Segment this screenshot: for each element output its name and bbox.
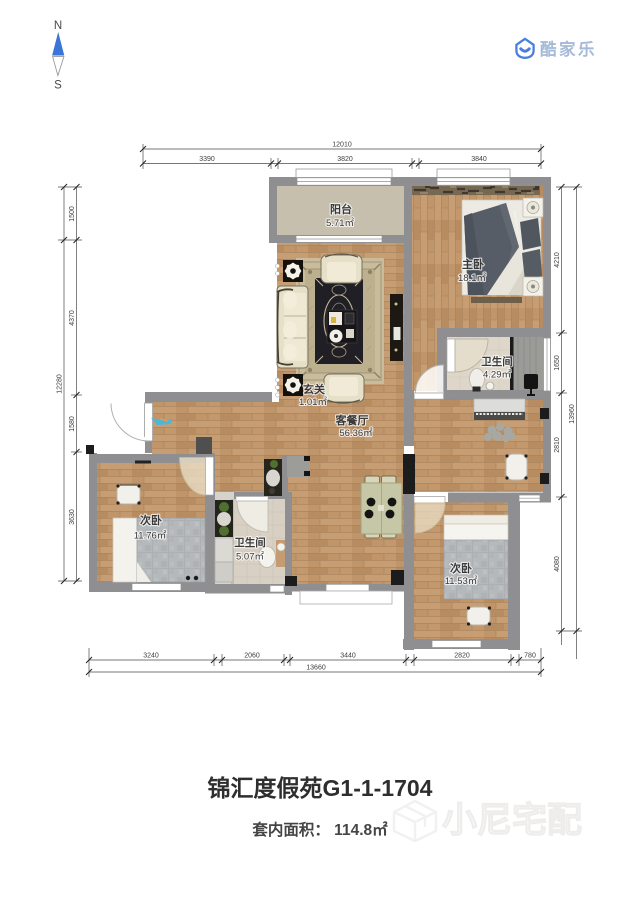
svg-text:小尼宅配: 小尼宅配 xyxy=(442,800,582,840)
svg-text:4080: 4080 xyxy=(554,556,561,572)
svg-text:阳台: 阳台 xyxy=(330,202,352,216)
svg-text:客餐厅: 客餐厅 xyxy=(335,413,369,427)
svg-text:2820: 2820 xyxy=(454,653,470,660)
svg-text:2810: 2810 xyxy=(554,437,561,453)
svg-text:酷家乐: 酷家乐 xyxy=(540,39,597,59)
svg-text:N: N xyxy=(54,20,62,32)
svg-text:11.53㎡: 11.53㎡ xyxy=(445,576,478,587)
svg-text:次卧: 次卧 xyxy=(140,513,162,527)
svg-text:780: 780 xyxy=(524,653,536,660)
svg-text:锦汇度假苑G1-1-1704: 锦汇度假苑G1-1-1704 xyxy=(208,775,433,801)
svg-text:56.36㎡: 56.36㎡ xyxy=(339,428,373,439)
svg-text:5.71㎡: 5.71㎡ xyxy=(326,218,354,229)
svg-text:卫生间: 卫生间 xyxy=(234,536,266,549)
svg-text:3820: 3820 xyxy=(337,156,353,163)
svg-text:3630: 3630 xyxy=(69,509,76,525)
svg-text:1500: 1500 xyxy=(69,206,76,222)
svg-text:3440: 3440 xyxy=(340,653,356,660)
svg-text:3390: 3390 xyxy=(199,156,215,163)
svg-text:3240: 3240 xyxy=(143,653,159,660)
svg-text:18.1㎡: 18.1㎡ xyxy=(458,273,486,284)
svg-text:13660: 13660 xyxy=(306,665,326,672)
svg-text:13960: 13960 xyxy=(569,404,576,424)
svg-text:4370: 4370 xyxy=(69,310,76,326)
svg-text:1650: 1650 xyxy=(554,355,561,371)
svg-text:次卧: 次卧 xyxy=(450,561,472,575)
svg-text:卫生间: 卫生间 xyxy=(481,355,513,368)
svg-text:5.07㎡: 5.07㎡ xyxy=(236,552,264,563)
svg-text:主卧: 主卧 xyxy=(462,257,484,271)
svg-text:12280: 12280 xyxy=(57,374,64,394)
svg-text:12010: 12010 xyxy=(332,142,352,149)
svg-text:1580: 1580 xyxy=(69,416,76,432)
svg-text:套内面积： 114.8㎡: 套内面积： 114.8㎡ xyxy=(252,820,388,839)
svg-text:4210: 4210 xyxy=(554,252,561,268)
svg-text:3840: 3840 xyxy=(471,156,487,163)
svg-text:2060: 2060 xyxy=(244,653,260,660)
svg-text:S: S xyxy=(54,80,62,92)
svg-text:11.76㎡: 11.76㎡ xyxy=(134,531,167,542)
svg-text:1.01㎡: 1.01㎡ xyxy=(299,397,327,408)
svg-text:玄关: 玄关 xyxy=(303,382,325,396)
svg-text:4.29㎡: 4.29㎡ xyxy=(483,370,511,381)
